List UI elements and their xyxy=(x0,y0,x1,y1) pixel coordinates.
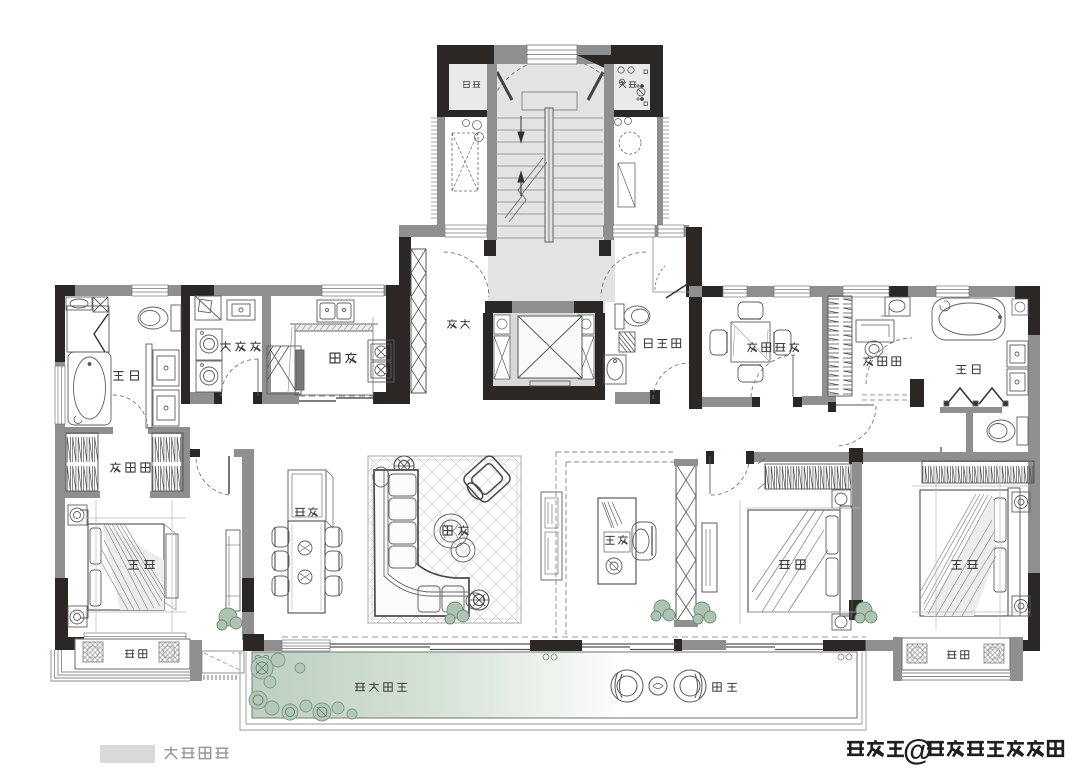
svg-text:@: @ xyxy=(903,734,932,767)
